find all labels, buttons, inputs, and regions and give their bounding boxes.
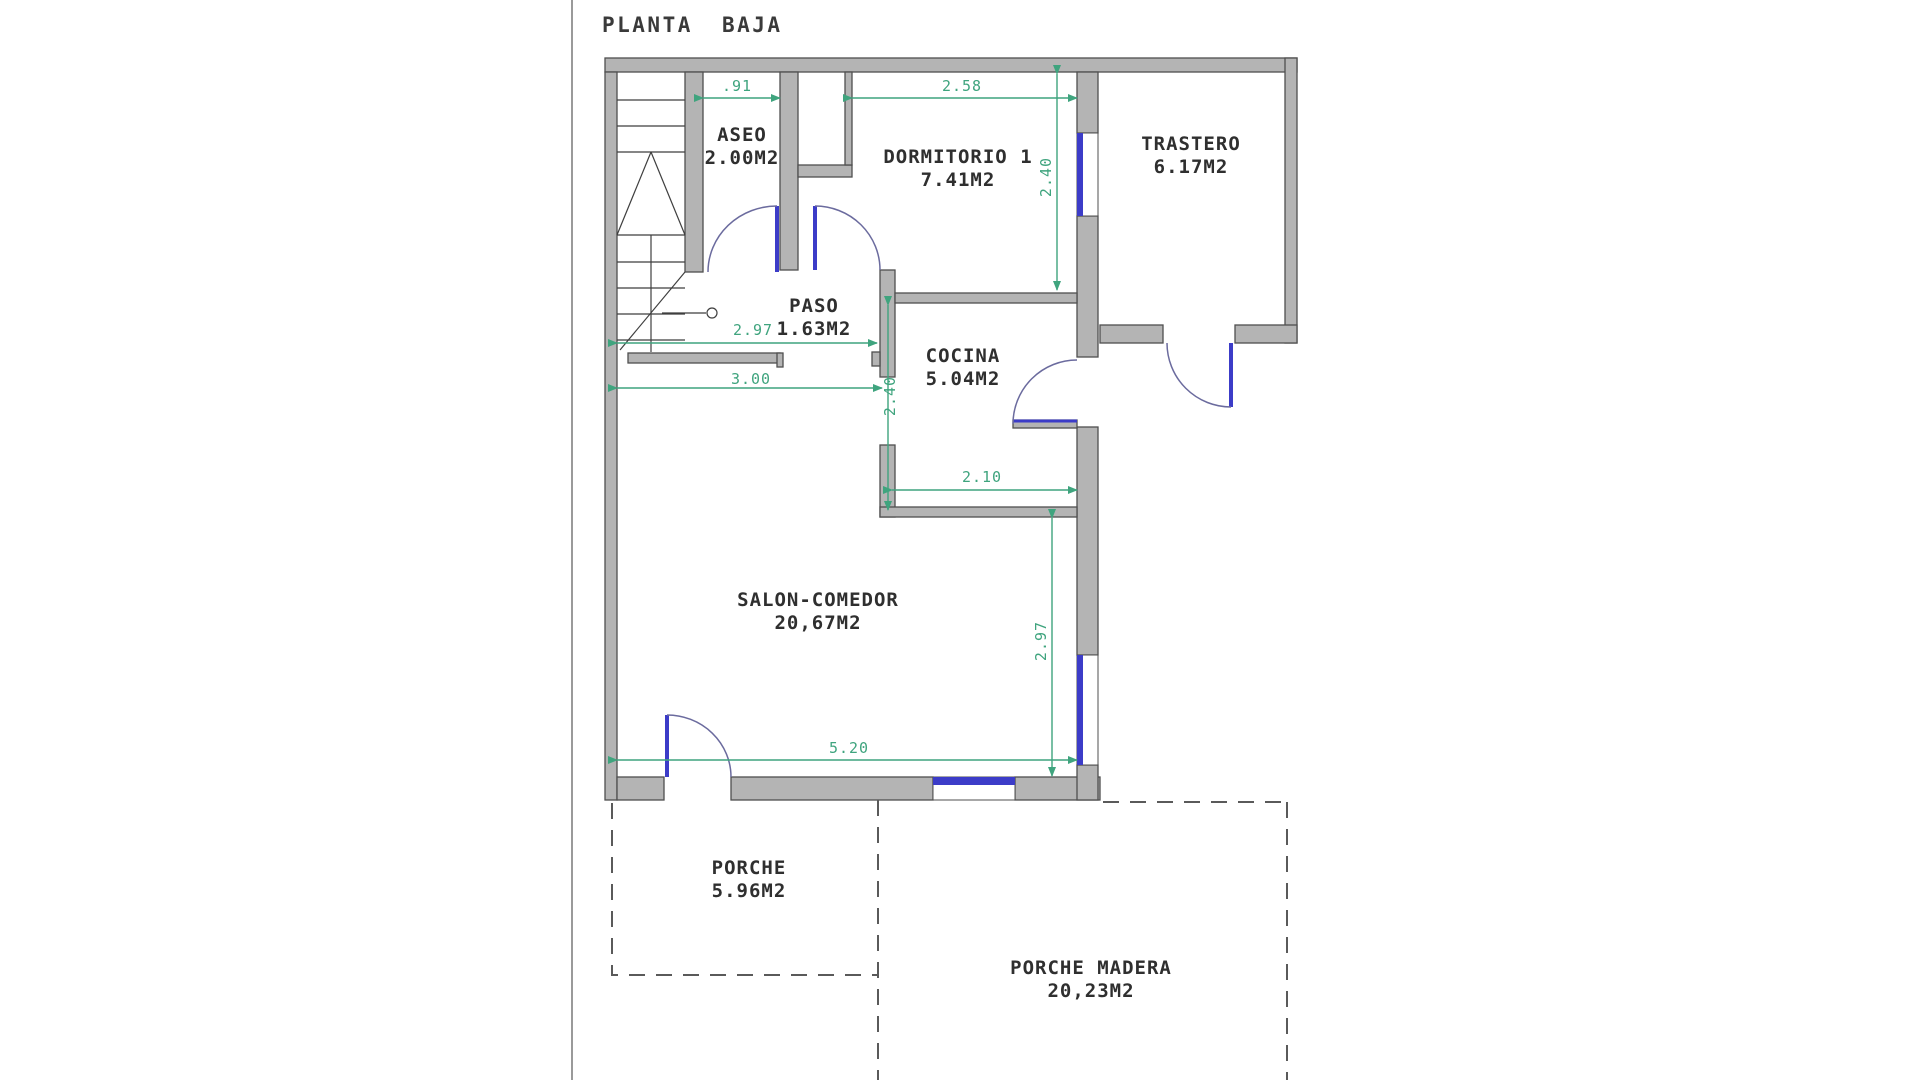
room-area-trastero: 6.17M2 (1141, 156, 1241, 179)
room-area-cocina: 5.04M2 (926, 368, 1001, 391)
dim-aseo-width: .91 (722, 77, 752, 95)
dim-dormitorio-height: 2.40 (1037, 157, 1055, 197)
room-area-porche: 5.96M2 (712, 880, 787, 903)
dim-paso-width: 2.97 (733, 321, 773, 339)
room-name-trastero: TRASTERO (1141, 133, 1241, 156)
plan-title: PLANTA BAJA (602, 13, 783, 37)
door-arcs (667, 206, 1231, 777)
door-leaves (667, 206, 1231, 777)
room-label-paso: PASO 1.63M2 (777, 295, 852, 341)
dim-dormitorio-width: 2.58 (942, 77, 982, 95)
room-name-cocina: COCINA (926, 345, 1001, 368)
room-area-aseo: 2.00M2 (705, 147, 780, 170)
room-label-cocina: COCINA 5.04M2 (926, 345, 1001, 391)
room-area-salon: 20,67M2 (737, 612, 899, 635)
dim-cocina-width: 2.10 (962, 468, 1002, 486)
dim-salon-width-top: 3.00 (731, 370, 771, 388)
room-name-salon: SALON-COMEDOR (737, 589, 899, 612)
room-label-porche-madera: PORCHE MADERA 20,23M2 (1010, 957, 1172, 1003)
room-name-porche-madera: PORCHE MADERA (1010, 957, 1172, 980)
room-area-porche-madera: 20,23M2 (1010, 980, 1172, 1003)
room-label-aseo: ASEO 2.00M2 (705, 124, 780, 170)
room-name-aseo: ASEO (705, 124, 780, 147)
room-label-dormitorio: DORMITORIO 1 7.41M2 (883, 146, 1032, 192)
room-name-porche: PORCHE (712, 857, 787, 880)
dim-salon-height: 2.97 (1032, 621, 1050, 661)
room-name-paso: PASO (777, 295, 852, 318)
room-label-porche: PORCHE 5.96M2 (712, 857, 787, 903)
room-area-paso: 1.63M2 (777, 318, 852, 341)
room-area-dormitorio: 7.41M2 (883, 169, 1032, 192)
dim-cocina-height: 2.40 (881, 376, 899, 416)
dim-salon-width-bottom: 5.20 (829, 739, 869, 757)
windows (933, 133, 1098, 800)
porch-dashed-outlines (612, 800, 1287, 1080)
floor-plan-page: PLANTA BAJA ASEO 2.00M2 DORMITORIO 1 7.4… (0, 0, 1920, 1080)
room-label-salon: SALON-COMEDOR 20,67M2 (737, 589, 899, 635)
room-label-trastero: TRASTERO 6.17M2 (1141, 133, 1241, 179)
room-name-dormitorio: DORMITORIO 1 (883, 146, 1032, 169)
